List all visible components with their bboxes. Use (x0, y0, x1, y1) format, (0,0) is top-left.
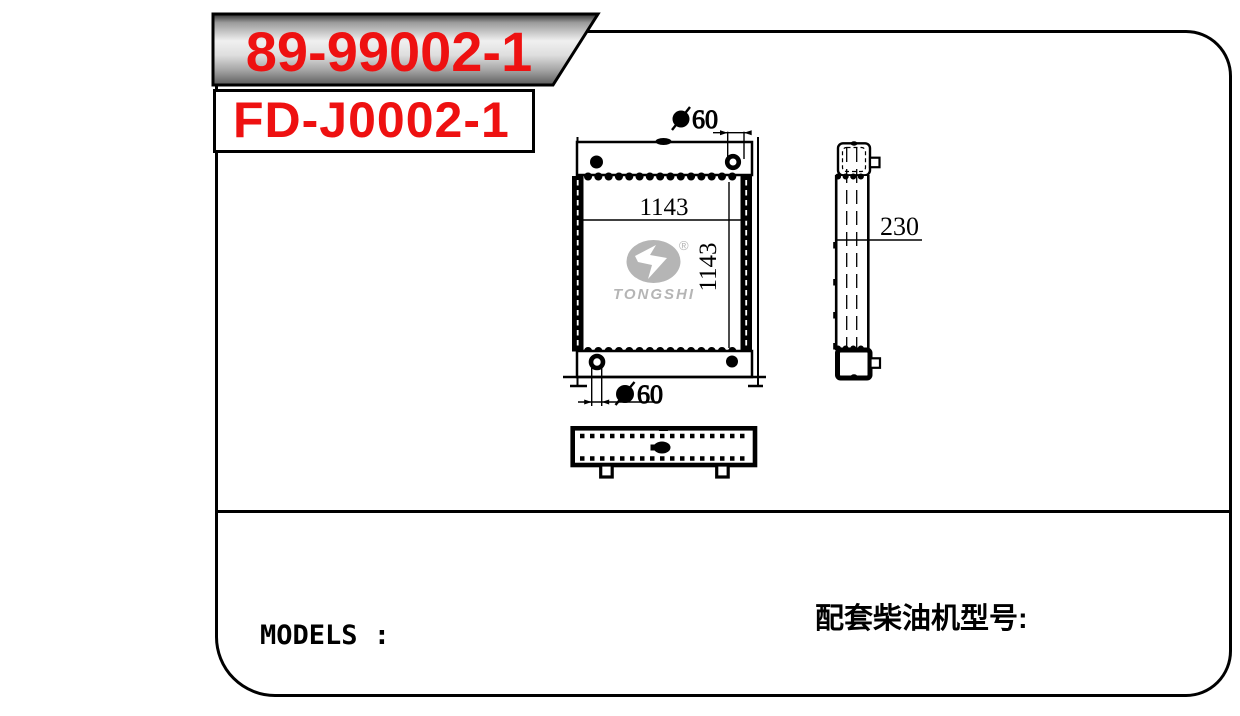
specs-panel-right: 配套柴油机型号: 配套功率(KW) : 直径*中心高 : 安装尺寸：1167*1… (815, 524, 1083, 716)
top-cap-dot (590, 156, 603, 169)
side-view (833, 141, 880, 378)
filler-cap-mark (656, 138, 672, 145)
spec-line-engine-model: 配套柴油机型号: (815, 600, 1083, 638)
bottom-cap-dot (726, 356, 738, 368)
section-divider (217, 510, 1230, 513)
svg-text:60: 60 (637, 380, 663, 409)
ref-code-text: FD-J0002-1 (216, 92, 532, 148)
tongshi-logo: ® TONGSHI (613, 238, 695, 303)
mount-tab-bottom (871, 358, 881, 368)
product-drawing: 1143 1143 60 (540, 85, 980, 485)
mount-tab-top (870, 158, 880, 168)
top-pipe (727, 156, 739, 168)
dim-core-width: 1143 (581, 194, 748, 221)
svg-text:60: 60 (692, 105, 718, 134)
svg-text:1143: 1143 (639, 194, 688, 221)
brand-text: TONGSHI (613, 286, 695, 303)
part-code-text: 89-99002-1 (246, 20, 532, 83)
svg-text:1143: 1143 (695, 242, 722, 291)
svg-text:230: 230 (880, 212, 919, 241)
part-code-banner: 89-99002-1 (211, 11, 611, 91)
specs-panel-left: MODELS : CORE SIZE : 1143×1143 FULL SIZE… (260, 541, 666, 716)
top-view (573, 426, 755, 477)
foot-right (717, 465, 729, 477)
spec-line-models: MODELS : (260, 617, 666, 655)
catalog-page: 89-99002-1 FD-J0002-1 (0, 0, 1240, 716)
foot-left (601, 465, 613, 477)
bottom-pipe (591, 356, 603, 368)
ref-code-box: FD-J0002-1 (213, 89, 535, 153)
dim-core-height: 1143 (695, 182, 729, 348)
registered-mark: ® (679, 238, 689, 253)
phi-symbol (672, 107, 690, 130)
